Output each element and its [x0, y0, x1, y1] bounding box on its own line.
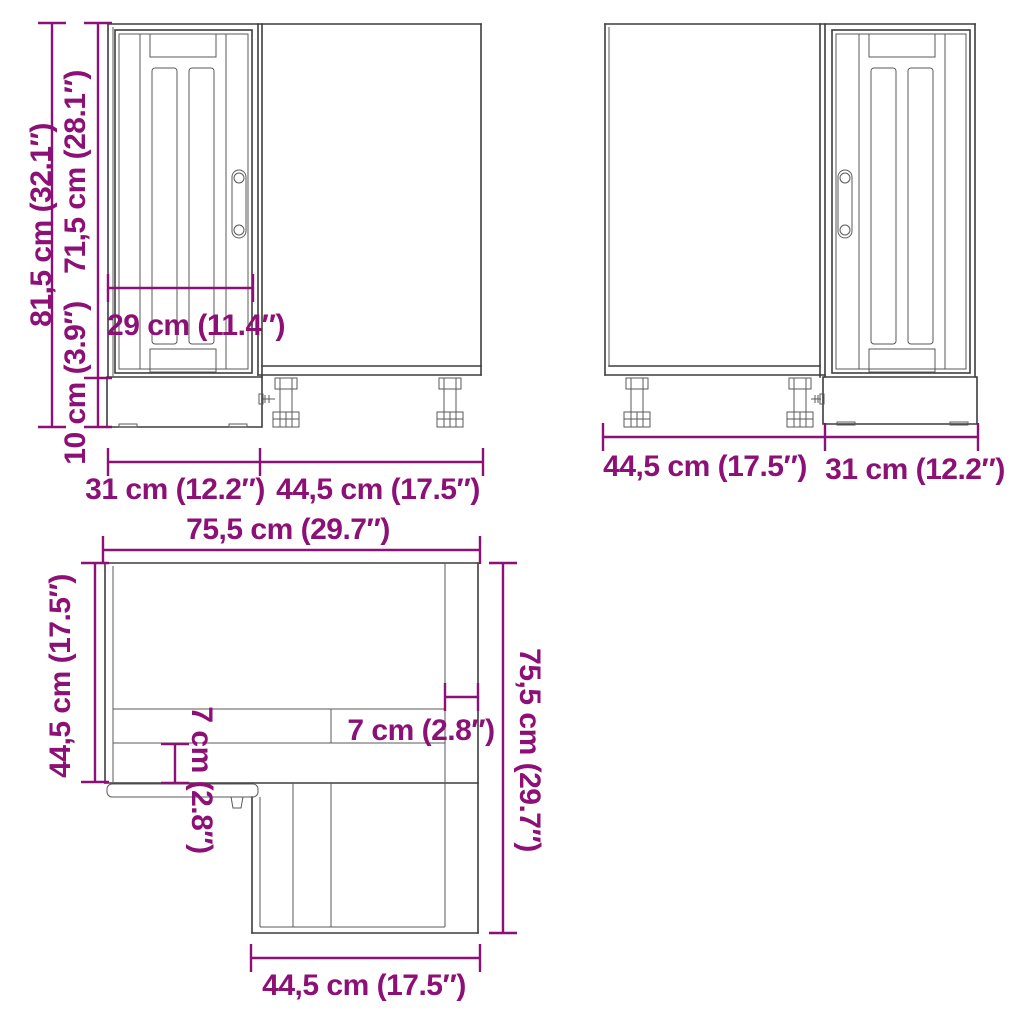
technical-drawing	[0, 0, 1024, 1024]
dim-plan-left-depth: 44,5 cm (17.5″)	[44, 574, 78, 778]
dim-plan-right-depth: 75,5 cm (29.7″)	[512, 648, 546, 852]
dim-front-right-right-width: 31 cm (12.2″)	[825, 453, 1005, 487]
dim-front-left-right-width: 44,5 cm (17.5″)	[276, 473, 480, 507]
dim-plan-panel-left: 7 cm (2.8″)	[184, 706, 218, 853]
dim-front-left-left-width: 31 cm (12.2″)	[85, 473, 265, 507]
dim-plan-top-width: 75,5 cm (29.7″)	[186, 513, 390, 547]
dim-total-height: 81,5 cm (32.1″)	[25, 123, 59, 327]
front-right-adjustable-legs	[624, 378, 824, 427]
front-left-cabinet-outline	[107, 24, 481, 427]
cabinet-dimension-diagram: 81,5 cm (32.1″) 71,5 cm (28.1″) 10 cm (3…	[0, 0, 1024, 1024]
front-right-door-handle	[838, 170, 852, 238]
dim-front-right-left-width: 44,5 cm (17.5″)	[603, 450, 807, 484]
plan-dimension-lines	[81, 536, 517, 972]
dim-plan-panel-right: 7 cm (2.8″)	[347, 714, 494, 748]
front-left-door-handle	[232, 170, 246, 238]
dim-door-height: 71,5 cm (28.1″)	[59, 70, 93, 274]
dim-plinth-height: 10 cm (3.9″)	[59, 301, 93, 464]
dim-plan-bottom-width: 44,5 cm (17.5″)	[262, 969, 466, 1003]
front-right-cabinet-outline	[605, 24, 977, 424]
dim-door-width: 29 cm (11.4″)	[107, 309, 285, 343]
front-left-door-detail	[113, 27, 248, 427]
plan-outline	[105, 563, 478, 933]
front-left-dimension-lines	[38, 23, 483, 476]
front-left-adjustable-legs	[259, 378, 463, 427]
